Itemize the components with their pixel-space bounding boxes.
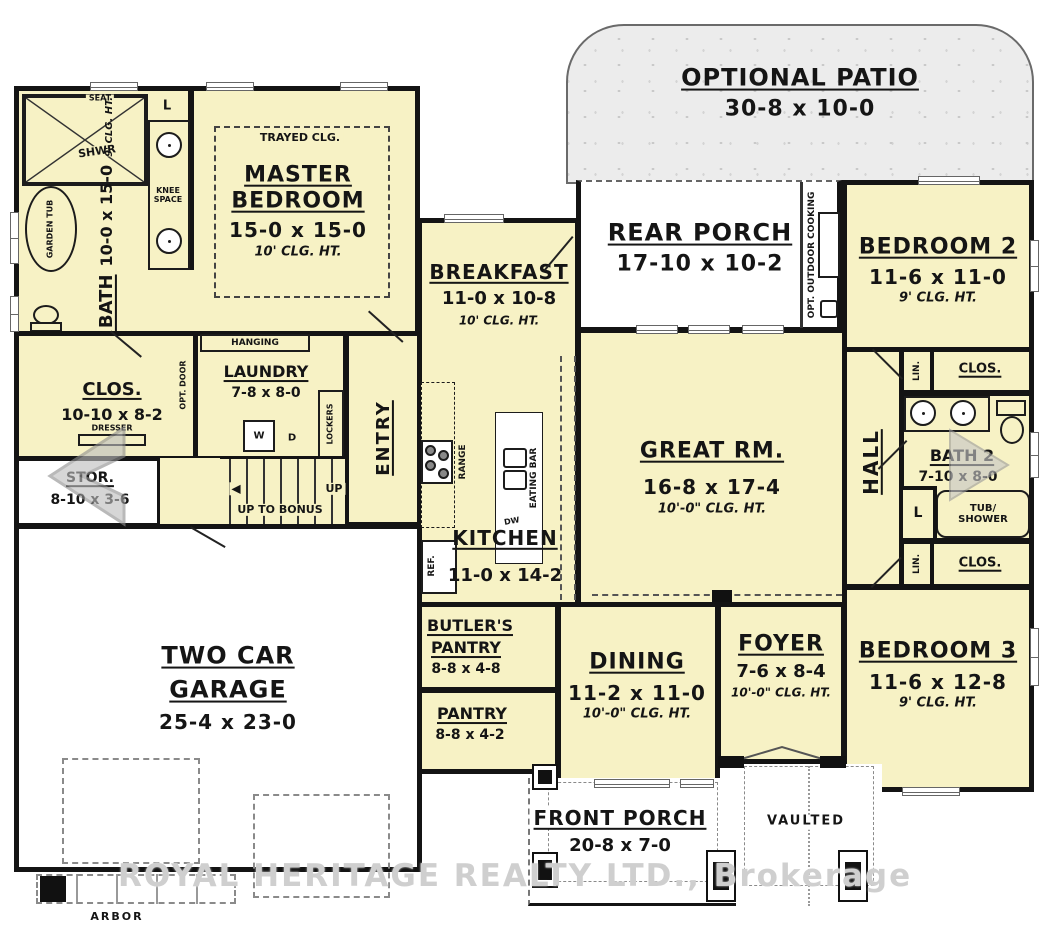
front-porch-name: FRONT PORCH — [530, 807, 711, 829]
master-bedroom-name1: MASTER — [244, 164, 352, 189]
bedroom3-dims: 11-6 x 12-8 — [869, 671, 1007, 693]
foyer-clg: 10'-0" CLG. HT. — [731, 686, 831, 699]
opt-door-label: OPT. DOOR — [180, 360, 189, 409]
lockers-label: LOCKERS — [327, 403, 336, 444]
garden-tub-label: GARDEN TUB — [47, 200, 56, 259]
window — [10, 212, 19, 264]
bedroom3-name: BEDROOM 3 — [859, 640, 1017, 665]
window — [636, 325, 678, 334]
burner-2 — [438, 450, 449, 461]
mbath-label-group: M. BATH10-0 x 15-09' CLG. HT. — [97, 97, 117, 359]
front-door — [736, 744, 828, 762]
bath2-sink-1 — [910, 400, 936, 426]
laundry-dims: 7-8 x 8-0 — [231, 386, 300, 402]
great-room-clg: 10'-0" CLG. HT. — [658, 503, 766, 518]
bath2-sink-2 — [950, 400, 976, 426]
burner-4 — [438, 468, 449, 479]
window — [918, 176, 980, 185]
dining-clg: 10'-0" CLG. HT. — [583, 708, 691, 723]
window — [680, 779, 714, 788]
island-sink-2 — [503, 470, 527, 490]
hall-name: HALL — [860, 429, 882, 495]
breakfast-clg: 10' CLG. HT. — [459, 314, 539, 327]
mbath-dims: 10-0 x 15-0 — [98, 165, 116, 267]
garage-name2: GARAGE — [169, 677, 286, 704]
window — [444, 214, 504, 223]
clos-bottom-label: CLOS. — [959, 557, 1002, 572]
next-arrow-icon[interactable] — [946, 426, 1012, 504]
trayed-clg-label: TRAYED CLG. — [256, 132, 344, 144]
optional-patio-dims: 30-8 x 10-0 — [725, 98, 876, 123]
porch-pier-1 — [532, 764, 558, 790]
eating-bar-label: EATING BAR — [529, 448, 539, 509]
stairs-landing — [160, 458, 220, 526]
mbath-sink-2 — [156, 228, 182, 254]
window — [688, 325, 730, 334]
bath2-linen-label: L — [914, 506, 923, 522]
mbath-linen-label: L — [163, 100, 171, 115]
mbath-sink-1 — [156, 132, 182, 158]
knee-space-label: KNEE SPACE — [148, 187, 188, 205]
master-closet-dims: 10-10 x 8-2 — [61, 406, 163, 424]
porch-divider — [800, 182, 803, 330]
porch-sink-fixture — [820, 300, 838, 318]
lin-bottom-label: LIN. — [912, 554, 922, 574]
opt-outdoor-cooking-label: OPT. OUTDOOR COOKING — [807, 192, 817, 319]
burner-3 — [425, 460, 436, 471]
window — [1030, 628, 1039, 686]
shower-x-lines — [26, 98, 144, 182]
window — [206, 82, 254, 91]
clos-top-label: CLOS. — [959, 363, 1002, 378]
garage-name1: TWO CAR — [161, 643, 294, 670]
optional-patio-name: OPTIONAL PATIO — [681, 65, 919, 92]
wall-stub-2 — [820, 756, 846, 768]
brokerage-watermark: ROYAL HERITAGE REALTY LTD., Brokerage — [118, 858, 912, 894]
arbor-post — [40, 876, 66, 902]
window — [90, 82, 138, 91]
ref-label: REF. — [427, 555, 437, 576]
great-room-name: GREAT RM. — [640, 440, 784, 465]
range-label: RANGE — [458, 445, 468, 480]
shower-fixture — [22, 94, 148, 186]
bath2-toilet — [996, 400, 1026, 416]
master-bedroom-dims: 15-0 x 15-0 — [229, 219, 367, 241]
butlers-pantry-name1: BUTLER'S — [427, 617, 513, 635]
prev-arrow-icon[interactable] — [36, 424, 132, 528]
butlers-pantry-dims: 8-8 x 4-8 — [431, 662, 500, 678]
window — [10, 296, 19, 332]
great-room-area — [576, 328, 848, 608]
garage-dims: 25-4 x 23-0 — [159, 711, 297, 733]
washer-label: W — [253, 430, 264, 441]
window — [594, 779, 670, 788]
kitchen-greatroom-divider — [560, 356, 576, 600]
front-porch-dims: 20-8 x 7-0 — [565, 836, 675, 856]
garage-door-1 — [62, 758, 200, 864]
window — [1030, 432, 1039, 478]
wall-stub-1 — [718, 756, 744, 768]
tub-shower-label: TUB/ SHOWER — [948, 503, 1018, 525]
rear-porch-dims: 17-10 x 10-2 — [617, 253, 784, 278]
hanging-label: HANGING — [231, 338, 279, 348]
dining-dims: 11-2 x 11-0 — [568, 682, 706, 704]
vaulted-label: VAULTED — [763, 815, 849, 830]
pantry-dims: 8-8 x 4-2 — [435, 728, 504, 744]
bedroom2-name: BEDROOM 2 — [859, 236, 1017, 261]
arbor-label: ARBOR — [90, 911, 143, 923]
kitchen-dims: 11-0 x 14-2 — [448, 566, 562, 586]
breakfast-dims: 11-0 x 10-8 — [442, 289, 556, 309]
foyer-name: FOYER — [738, 633, 824, 658]
bedroom2-clg: 9' CLG. HT. — [899, 292, 977, 307]
bedroom3-clg: 9' CLG. HT. — [899, 697, 977, 712]
stairs-arrow: ◀ — [229, 482, 242, 495]
entry-name: ENTRY — [374, 400, 394, 476]
up-label: UP — [323, 483, 346, 495]
floor-plan: OPTIONAL PATIO 30-8 x 10-0 REAR PORCH 17… — [0, 0, 1052, 939]
window — [902, 787, 960, 796]
foyer-area — [716, 602, 846, 764]
lin-wall — [930, 350, 934, 392]
up-to-bonus-label: UP TO BONUS — [234, 504, 325, 516]
dryer-label: D — [288, 432, 296, 443]
great-room-dims: 16-8 x 17-4 — [643, 476, 781, 498]
island-sink-1 — [503, 448, 527, 468]
pantry-name: PANTRY — [437, 705, 507, 723]
lin-wall-2 — [930, 542, 934, 586]
butlers-pantry-name2: PANTRY — [431, 639, 501, 657]
kitchen-name: KITCHEN — [452, 527, 557, 549]
window — [742, 325, 784, 334]
lin-top-label: LIN. — [912, 361, 922, 381]
dining-name: DINING — [589, 651, 685, 676]
burner-1 — [425, 445, 436, 456]
master-bedroom-name2: BEDROOM — [231, 190, 364, 215]
rear-porch-name: REAR PORCH — [608, 220, 792, 247]
master-closet-name: CLOS. — [82, 380, 141, 400]
bedroom2-dims: 11-6 x 11-0 — [869, 266, 1007, 288]
laundry-name: LAUNDRY — [224, 363, 309, 381]
window — [1030, 240, 1039, 292]
foyer-dims: 7-6 x 8-4 — [736, 662, 825, 682]
master-bedroom-clg: 10' CLG. HT. — [254, 246, 341, 261]
mbath-clg: 9' CLG. HT. — [104, 97, 115, 157]
grill-fixture — [818, 212, 840, 278]
window — [340, 82, 388, 91]
